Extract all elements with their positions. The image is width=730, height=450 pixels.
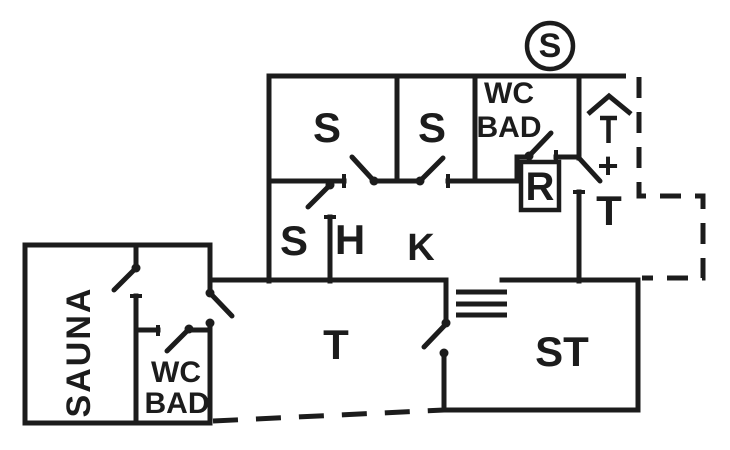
room-label-wc-top: WC	[484, 79, 534, 109]
floor-plan: S S S WC BAD R S H K + T T ST SAUNA WC B…	[0, 0, 730, 450]
entrance-plus-symbol: +	[597, 148, 618, 184]
plan-marker-label: S	[539, 29, 562, 63]
room-label-living-room: ST	[535, 331, 589, 373]
room-label-wc-bottom: WC	[151, 358, 201, 388]
entrance-arrow-icon	[588, 96, 631, 143]
room-label-terrace-main: T	[323, 324, 349, 366]
room-label-hall: H	[335, 219, 365, 261]
steps-icon	[456, 292, 507, 315]
room-label-bad-top: BAD	[477, 113, 542, 143]
room-label-bad-bottom: BAD	[145, 389, 210, 419]
room-label-terrace-east: T	[596, 190, 622, 232]
room-label-bedroom-1: S	[313, 107, 341, 149]
room-label-sauna: SAUNA	[62, 287, 96, 418]
room-label-bedroom-2: S	[418, 107, 446, 149]
room-label-bedroom-3: S	[280, 220, 308, 262]
room-label-kitchen: K	[407, 229, 434, 267]
room-label-r: R	[526, 167, 555, 207]
dashed-boundary-line	[213, 410, 444, 421]
